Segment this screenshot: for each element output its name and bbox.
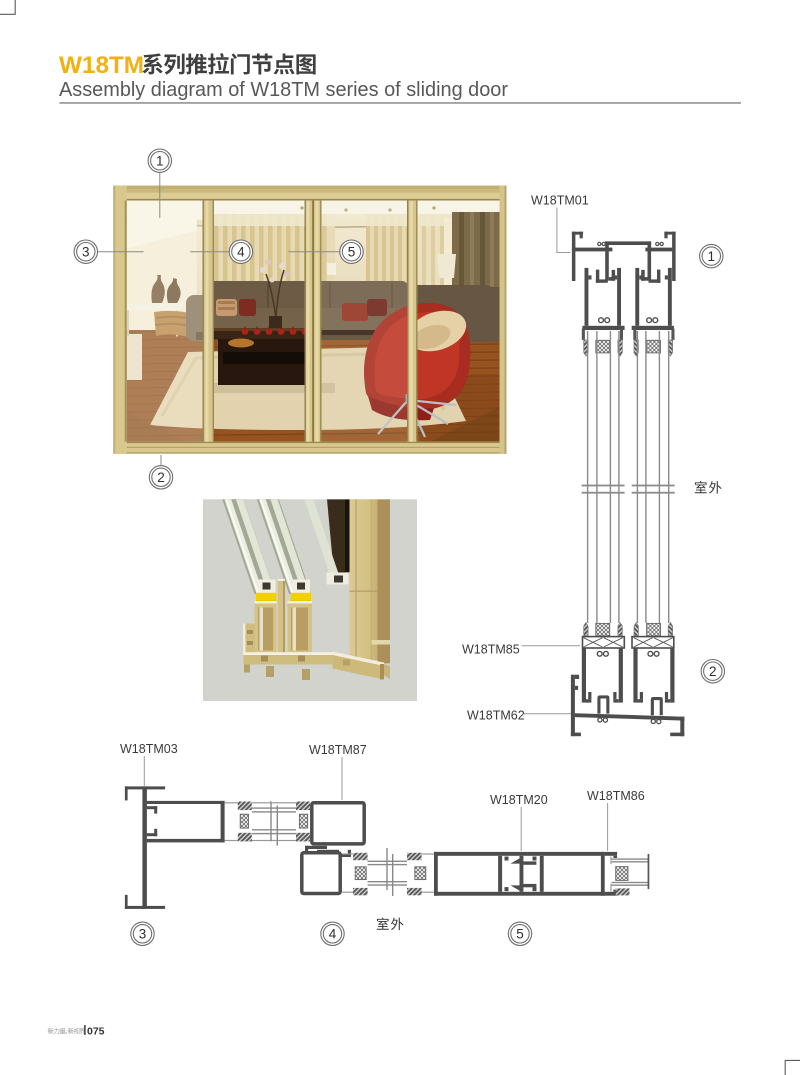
svg-text:W18TM85: W18TM85: [462, 643, 520, 657]
svg-text:5: 5: [348, 245, 356, 260]
svg-text:075: 075: [87, 1026, 105, 1038]
svg-text:5: 5: [516, 927, 524, 942]
svg-text:1: 1: [708, 249, 716, 264]
svg-text:3: 3: [139, 927, 147, 942]
svg-text:4: 4: [329, 927, 337, 942]
svg-text:W18TM20: W18TM20: [490, 793, 548, 807]
svg-text:W18TM62: W18TM62: [467, 709, 525, 723]
svg-text:W18TM03: W18TM03: [120, 742, 178, 756]
svg-text:1: 1: [156, 154, 164, 169]
svg-text:W18TM86: W18TM86: [587, 789, 645, 803]
svg-text:4: 4: [237, 245, 245, 260]
svg-text:3: 3: [82, 245, 90, 260]
svg-text:W18TM87: W18TM87: [309, 743, 367, 757]
svg-text:2: 2: [709, 664, 717, 679]
svg-text:W18TM: W18TM: [59, 52, 144, 79]
svg-text:2: 2: [157, 470, 165, 485]
svg-text:Assembly diagram of W18TM seri: Assembly diagram of W18TM series of slid…: [59, 79, 508, 101]
svg-text:W18TM01: W18TM01: [531, 194, 589, 208]
